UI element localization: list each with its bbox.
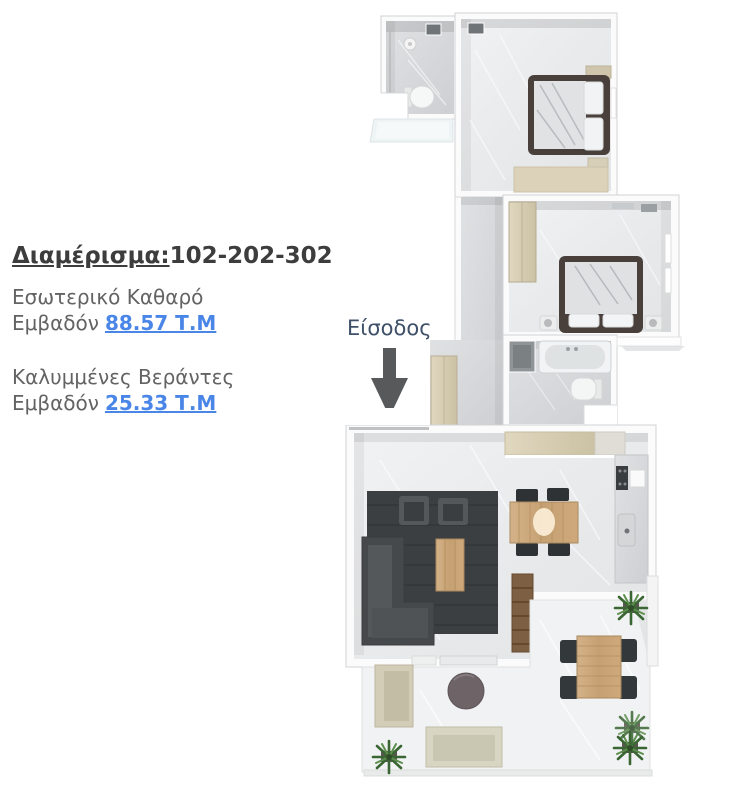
plant-icon: [616, 712, 648, 744]
bathroom-top: [379, 16, 459, 119]
bathroom-middle: [503, 335, 617, 430]
entrance-label: Είσοδος: [347, 316, 432, 340]
apartment-title-label: Διαμέρισμα:: [12, 243, 170, 269]
veranda-area-block: Καλυμμένες Βεράντες Εμβαδόν25.33 Τ.Μ: [12, 364, 342, 416]
internal-area-line1: Εσωτερικό Καθαρό: [12, 285, 203, 309]
hallway: [430, 197, 503, 430]
bedroom-middle: [503, 195, 679, 340]
bedroom-top: [455, 13, 617, 197]
coffee-table: [436, 539, 464, 591]
page: { "window": {"width": 734, "height": 785…: [0, 0, 734, 785]
entrance-arrow-icon: [371, 348, 408, 417]
internal-area-prefix: Εμβαδόν: [12, 311, 99, 335]
armchair: [438, 498, 468, 525]
outdoor-sofa: [426, 727, 502, 767]
outdoor-bench: [375, 665, 413, 727]
veranda-area-value-link[interactable]: 25.33 Τ.Μ: [105, 391, 216, 415]
wall-ledge: [617, 337, 685, 351]
plant-icon: [615, 592, 647, 624]
internal-area-block: Εσωτερικό Καθαρό Εμβαδόν88.57 Τ.Μ: [12, 284, 342, 336]
skylight-panel: [370, 119, 453, 142]
veranda-area-prefix: Εμβαδόν: [12, 391, 99, 415]
plant-icon: [373, 741, 405, 773]
veranda-area-line1: Καλυμμένες Βεράντες: [12, 365, 234, 389]
armchair: [399, 496, 429, 525]
apartment-title-value: 102-202-302: [170, 243, 333, 269]
round-table: [448, 673, 484, 709]
apartment-title: Διαμέρισμα:102-202-302: [12, 243, 333, 269]
internal-area-value-link[interactable]: 88.57 Τ.Μ: [105, 311, 216, 335]
